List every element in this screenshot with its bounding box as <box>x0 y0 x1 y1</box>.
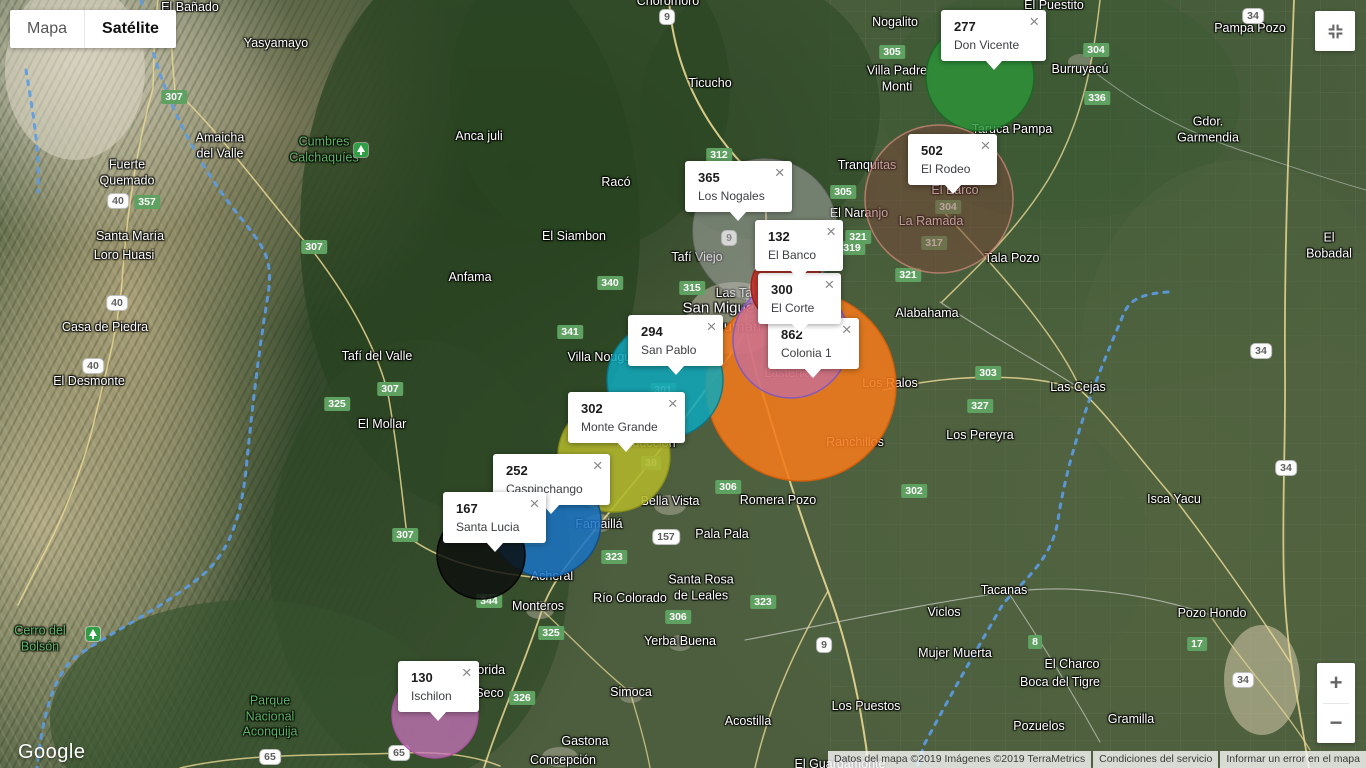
info-window-el-rodeo: ×502El Rodeo <box>908 134 997 185</box>
zoom-control: + − <box>1317 663 1355 743</box>
info-window-ischilon: ×130Ischilon <box>398 661 479 712</box>
close-icon[interactable]: × <box>593 457 603 474</box>
terms-of-service-link[interactable]: Condiciones del servicio <box>1093 751 1218 768</box>
map-canvas[interactable]: El BañadoChoromoroNogalitoEl PuestitoPam… <box>0 0 1366 768</box>
close-icon[interactable]: × <box>668 395 678 412</box>
marker-name: Santa Lucia <box>456 520 519 534</box>
info-window-san-pablo: ×294San Pablo <box>628 315 723 366</box>
marker-value: 167 <box>456 501 519 516</box>
terms-link-text[interactable]: Condiciones del servicio <box>1099 753 1212 765</box>
zoom-out-button[interactable]: − <box>1317 704 1355 744</box>
google-logo[interactable]: Google <box>18 741 86 764</box>
marker-value: 365 <box>698 170 765 185</box>
fullscreen-icon <box>1326 22 1345 41</box>
fullscreen-button[interactable] <box>1315 11 1355 51</box>
info-window-colonia-1: ×862Colonia 1 <box>768 318 859 369</box>
info-window-el-banco: ×132El Banco <box>755 220 843 271</box>
info-window-santa-lucia: ×167Santa Lucia <box>443 492 546 543</box>
attribution-bar: Datos del mapa ©2019 Imágenes ©2019 Terr… <box>828 751 1366 768</box>
marker-value: 302 <box>581 401 658 416</box>
close-icon[interactable]: × <box>1029 13 1039 30</box>
map-data-attribution: Datos del mapa ©2019 Imágenes ©2019 Terr… <box>828 751 1091 768</box>
info-window-monte-grande: ×302Monte Grande <box>568 392 685 443</box>
info-window-don-vicente: ×277Don Vicente <box>941 10 1046 61</box>
close-icon[interactable]: × <box>706 318 716 335</box>
info-window-los-nogales: ×365Los Nogales <box>685 161 792 212</box>
marker-value: 277 <box>954 19 1019 34</box>
marker-value: 252 <box>506 463 583 478</box>
zoom-in-button[interactable]: + <box>1317 663 1355 703</box>
marker-name: San Pablo <box>641 343 696 357</box>
marker-name: Colonia 1 <box>781 346 832 360</box>
map-type-control: Mapa Satélite <box>10 10 176 48</box>
close-icon[interactable]: × <box>824 276 834 293</box>
report-link-text[interactable]: Informar un error en el mapa <box>1226 753 1360 765</box>
marker-name: Don Vicente <box>954 38 1019 52</box>
satellite-view-button[interactable]: Satélite <box>85 10 176 48</box>
marker-value: 300 <box>771 282 814 297</box>
marker-value: 294 <box>641 324 696 339</box>
info-windows-layer: ×365Los Nogales×277Don Vicente×502El Rod… <box>0 0 1366 768</box>
map-view-button[interactable]: Mapa <box>10 10 84 48</box>
close-icon[interactable]: × <box>462 664 472 681</box>
marker-name: Monte Grande <box>581 420 658 434</box>
info-window-el-corte: ×300El Corte <box>758 273 841 324</box>
marker-value: 502 <box>921 143 970 158</box>
report-error-link[interactable]: Informar un error en el mapa <box>1220 751 1366 768</box>
marker-name: Los Nogales <box>698 189 765 203</box>
marker-name: El Banco <box>768 248 816 262</box>
marker-name: Ischilon <box>411 689 452 703</box>
close-icon[interactable]: × <box>775 164 785 181</box>
marker-name: El Corte <box>771 301 814 315</box>
close-icon[interactable]: × <box>529 495 539 512</box>
close-icon[interactable]: × <box>826 223 836 240</box>
marker-name: El Rodeo <box>921 162 970 176</box>
marker-value: 132 <box>768 229 816 244</box>
marker-value: 130 <box>411 670 452 685</box>
close-icon[interactable]: × <box>980 137 990 154</box>
close-icon[interactable]: × <box>842 321 852 338</box>
